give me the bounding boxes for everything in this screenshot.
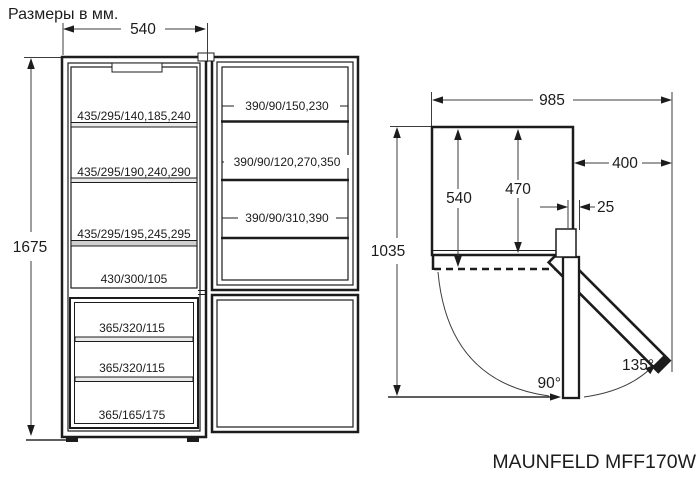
interior-depth-dim-label: 470 bbox=[505, 181, 531, 198]
lamp-box bbox=[112, 63, 162, 72]
front-view: 540 1675 435/295/140,185,240 435/295/190… bbox=[13, 21, 358, 442]
top-total-depth-dimension: 1035 bbox=[371, 127, 405, 396]
top-total-depth-dim-label: 1035 bbox=[371, 243, 405, 260]
hinge-block bbox=[556, 229, 576, 257]
dimension-diagram: 540 1675 435/295/140,185,240 435/295/190… bbox=[0, 0, 700, 477]
door-swing-arc bbox=[438, 272, 549, 396]
fridge-shelf-label: 435/295/140,185,240 bbox=[77, 109, 191, 123]
door-projection-dim-label: 400 bbox=[612, 155, 638, 172]
top-total-width-dimension: 985 bbox=[432, 92, 672, 109]
door-projection-dimension: 400 bbox=[574, 155, 672, 172]
front-width-dimension: 540 bbox=[63, 21, 206, 38]
top-view: 985 400 540 470 bbox=[371, 92, 672, 401]
page-title: Размеры в мм. bbox=[8, 6, 118, 23]
freezer-drawer-label: 365/320/115 bbox=[99, 361, 165, 375]
fridge-shelf-label: 430/300/105 bbox=[101, 272, 168, 286]
front-height-dimension: 1675 bbox=[13, 58, 47, 436]
cabinet-foot bbox=[187, 437, 199, 442]
hinge-clearance-dim-label: 25 bbox=[597, 199, 614, 216]
fridge-shelf bbox=[71, 241, 197, 247]
front-width-dim-label: 540 bbox=[130, 21, 156, 38]
freezer-divider bbox=[75, 337, 193, 342]
freezer-divider bbox=[75, 377, 193, 382]
top-total-width-dim-label: 985 bbox=[539, 92, 565, 109]
top-hinge-notch bbox=[198, 53, 214, 61]
fridge-shelf-label: 435/295/195,245,295 bbox=[77, 227, 191, 241]
freezer-drawer-label: 365/165/175 bbox=[99, 408, 166, 422]
cabinet-depth-dim-label: 540 bbox=[446, 190, 472, 207]
door-open-90 bbox=[563, 257, 579, 398]
door-angle-90-label: 90° bbox=[538, 375, 561, 392]
door-shelf-label: 390/90/120,270,350 bbox=[234, 155, 341, 169]
cabinet-foot bbox=[66, 437, 78, 442]
fridge-door-top: 390/90/150,230 390/90/120,270,350 390/90… bbox=[212, 57, 358, 290]
door-shelf-label: 390/90/310,390 bbox=[245, 211, 329, 225]
freezer-drawer-label: 365/320/115 bbox=[99, 321, 165, 335]
model-label: MAUNFELD MFF170W bbox=[492, 451, 696, 473]
freezer-door bbox=[212, 295, 358, 432]
door-angle-135-label: 135° bbox=[622, 357, 654, 374]
fridge-shelf bbox=[71, 123, 197, 128]
front-height-dim-label: 1675 bbox=[13, 239, 47, 256]
fridge-shelf-label: 435/295/190,240,290 bbox=[77, 165, 191, 179]
door-shelf-label: 390/90/150,230 bbox=[245, 99, 329, 113]
